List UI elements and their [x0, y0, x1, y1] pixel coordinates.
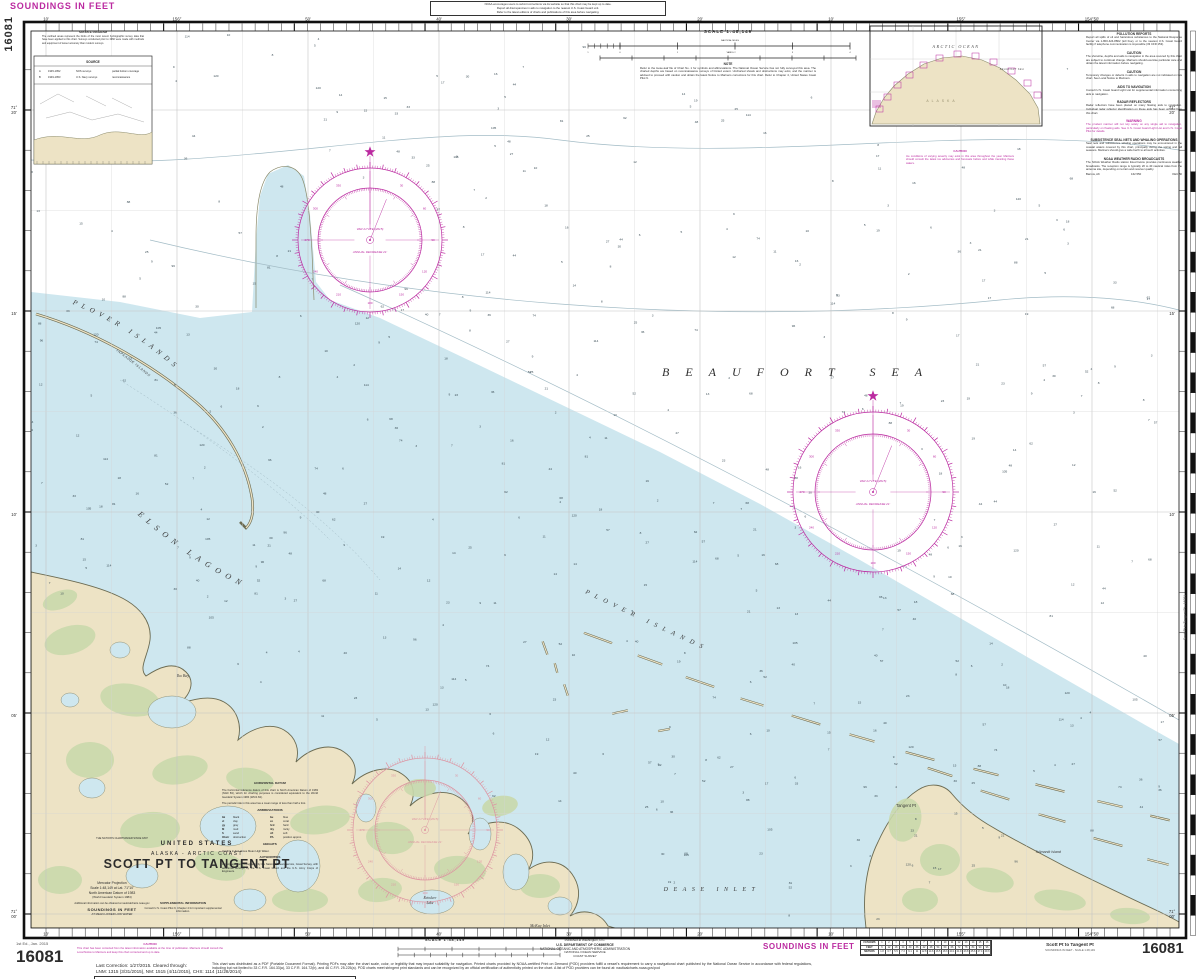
sounding-value: 36: [173, 410, 177, 414]
sounding-value: 2: [204, 466, 206, 470]
sounding-value: 15: [253, 282, 257, 286]
sounding-value: 62: [332, 518, 336, 522]
source-row-dates: 1945-1952: [48, 69, 61, 73]
longitude-label-top: 30': [566, 17, 572, 22]
sounding-value: 62: [1147, 295, 1151, 299]
rose-degree-label: 300: [313, 207, 318, 211]
sounding-value: 57: [1154, 420, 1158, 424]
sounding-value: 114: [106, 564, 111, 568]
sounding-value: 4: [576, 373, 578, 377]
sounding-value: 68: [715, 557, 719, 561]
sounding-value: 4: [266, 651, 268, 655]
sounding-value: 74: [1118, 785, 1122, 789]
sounding-value: 11: [543, 534, 546, 538]
sounding-value: 74: [694, 328, 698, 332]
sounding-value: 44: [1140, 805, 1144, 809]
sounding-value: 12: [366, 316, 370, 320]
sounding-value: 9: [448, 392, 450, 396]
sounding-value: 7: [828, 748, 830, 752]
sounding-value: 3: [415, 444, 417, 448]
margin-ruler-segment: [1191, 433, 1196, 453]
mckay-inlet: McKay Inlet: [529, 923, 551, 928]
sounding-value: 36: [1139, 777, 1143, 781]
sounding-value: 13: [186, 332, 190, 336]
sounding-value: 40: [913, 617, 917, 621]
sounding-value: 15: [383, 96, 387, 100]
sounding-value: 9: [504, 553, 506, 557]
sounding-value: 5: [756, 589, 758, 593]
sounding-value: 96: [413, 638, 417, 642]
rose-degree-label: 30: [455, 773, 459, 777]
sounding-value: 36: [641, 330, 645, 334]
sounding-value: 19: [668, 880, 672, 884]
sounding-value: 114: [746, 113, 751, 117]
rose-variation-change-label: ANNUAL DECREASE 21': [855, 502, 891, 506]
margin-ruler-segment: [1191, 172, 1196, 192]
longitude-label-top: 40': [436, 17, 442, 22]
sounding-value: 114: [185, 35, 190, 39]
sounding-value: 3: [887, 204, 889, 208]
sounding-value: 4: [175, 79, 177, 83]
sounding-value: 19: [897, 548, 901, 552]
sounding-value: 52: [257, 578, 261, 582]
sounding-value: 27: [364, 501, 368, 505]
map-water-land: [31, 31, 1179, 928]
sounding-value: 33: [874, 794, 878, 798]
margin-ruler-segment: [1191, 594, 1196, 614]
sounding-value: 48: [962, 165, 966, 169]
sounding-value: 5: [376, 718, 378, 722]
sounding-value: 81: [81, 537, 85, 541]
sounding-value: 4: [667, 408, 669, 412]
sounding-value: 17: [765, 781, 769, 785]
sounding-value: 6: [342, 466, 344, 470]
rose-variation-label: VAR 21°15'E (2015): [357, 227, 384, 231]
sounding-value: 19: [971, 436, 975, 440]
sounding-value: 96: [171, 264, 175, 268]
sounding-value: 3: [479, 424, 481, 428]
sounding-value: 6: [811, 96, 813, 100]
sounding-value: 19: [694, 99, 698, 103]
lake: [276, 840, 320, 892]
sounding-value: 8: [469, 329, 471, 333]
sounding-value: 68: [775, 562, 779, 566]
sounding-value: 68: [1070, 176, 1074, 180]
latitude-label-right: 05': [1169, 713, 1175, 718]
sounding-value: 36: [184, 156, 188, 160]
sounding-value: 14: [573, 283, 577, 287]
sounding-value: 21: [1025, 237, 1029, 241]
sounding-value: 18: [914, 600, 918, 604]
margin-ruler-segment: [1191, 775, 1196, 795]
margin-ruler-segment: [1191, 473, 1196, 493]
sounding-value: 5: [504, 95, 506, 99]
sounding-value: 57: [982, 723, 986, 727]
sounding-value: 7: [1131, 560, 1133, 564]
sounding-value: 9: [151, 259, 153, 263]
sounding-value: 27: [506, 340, 510, 344]
sounding-value: 25: [145, 250, 149, 254]
sounding-value: 7: [311, 277, 313, 281]
inset-beaufort-sea-label: BEAUFORT SEA: [1000, 68, 1024, 71]
sounding-value: 5: [388, 335, 390, 339]
sounding-value: 81: [1049, 614, 1053, 618]
sounding-value: 8: [788, 914, 790, 918]
sounding-value: 3: [1067, 242, 1069, 246]
longitude-label-top: 20': [697, 17, 703, 22]
sounding-value: 11: [382, 135, 385, 139]
sounding-value: 6: [1063, 227, 1065, 231]
sounding-value: 25: [468, 545, 472, 549]
sounding-value: 96: [582, 45, 586, 49]
sounding-value: 57: [880, 659, 884, 663]
sounding-value: 21: [267, 543, 271, 547]
sounding-value: 57: [1158, 738, 1162, 742]
margin-ruler-segment: [1191, 31, 1196, 51]
sounding-value: 96: [283, 531, 287, 535]
lake: [79, 778, 105, 798]
source-row-agency: U.S. Navy surveys: [76, 75, 98, 79]
longitude-label-bottom: 40': [436, 932, 442, 937]
sounding-value: 40: [425, 312, 429, 316]
sounding-value: 6: [750, 732, 752, 736]
sounding-value: 11: [252, 543, 255, 547]
sounding-value: 6: [639, 233, 641, 237]
sounding-value: 23: [906, 694, 910, 698]
sounding-value: 27: [523, 640, 527, 644]
sounding-value: 15: [827, 730, 831, 734]
sounding-value: 30: [953, 779, 957, 783]
sounding-value: 23: [446, 601, 450, 605]
sounding-value: 8: [877, 143, 879, 147]
rose-degree-label: 150: [906, 551, 911, 555]
margin-ruler-segment: [1191, 574, 1196, 594]
sounding-value: 3: [921, 447, 923, 451]
sounding-value: 7: [929, 880, 931, 884]
sounding-value: 9: [1031, 391, 1033, 395]
margin-ruler-segment: [1191, 694, 1196, 714]
beaufort-sea: BEAUFORT SEA: [662, 365, 938, 379]
sounding-value: 74: [756, 237, 760, 241]
sounding-value: 48: [864, 393, 868, 397]
sounding-value: 8: [915, 817, 917, 821]
sounding-value: 7: [1148, 418, 1150, 422]
sounding-value: 7: [451, 443, 453, 447]
sounding-value: 4: [260, 680, 262, 684]
sounding-value: 62: [717, 755, 721, 759]
sounding-value: 4: [318, 37, 320, 41]
sounding-value: 6: [493, 732, 495, 736]
sounding-value: 4: [442, 623, 444, 627]
sounding-value: 48: [695, 120, 699, 124]
inset-current-chart-highlight: [872, 100, 881, 108]
margin-ruler-segment: [1191, 111, 1196, 131]
longitude-label-top: 50': [305, 17, 311, 22]
latitude-label-left: 20': [11, 110, 17, 115]
sounding-value: 14: [398, 566, 402, 570]
rose-variation-label: VAR 21°15'E (2015): [412, 817, 439, 821]
bottom-scale-bars: [398, 947, 560, 957]
sounding-value: 6: [947, 545, 949, 549]
longitude-label-bottom: 50': [305, 932, 311, 937]
sounding-value: 23: [911, 829, 915, 833]
sounding-value: 15: [79, 221, 83, 225]
sounding-value: 81: [789, 881, 793, 885]
margin-ruler-segment: [1191, 755, 1196, 775]
sounding-value: 36: [487, 313, 491, 317]
sounding-value: 8: [705, 758, 707, 762]
sounding-value: 120: [572, 514, 577, 518]
sounding-value: 9: [173, 65, 175, 69]
sounding-value: 25: [645, 805, 649, 809]
sounding-value: 14: [1013, 448, 1017, 452]
sounding-value: 18: [117, 476, 121, 480]
sounding-value: 9: [669, 725, 671, 729]
sounding-value: 6: [862, 407, 864, 411]
sounding-value: 25: [972, 781, 976, 785]
sounding-value: 9: [1114, 364, 1116, 368]
longitude-label-top: 156°: [173, 17, 182, 22]
sounding-value: 33: [72, 494, 76, 498]
sounding-value: 10: [805, 229, 809, 233]
sounding-value: 114: [692, 559, 697, 563]
sounding-value: 6: [805, 514, 807, 518]
sounding-value: 16: [795, 259, 799, 263]
sounding-value: 88: [1090, 829, 1094, 833]
margin-ruler-segment: [1191, 895, 1196, 915]
sounding-value: 23: [455, 393, 459, 397]
sounding-value: 10: [324, 349, 328, 353]
sounding-value: 120: [355, 322, 360, 326]
sounding-value: 62: [658, 763, 662, 767]
sounding-value: 8: [892, 311, 894, 315]
sounding-value: 105: [209, 616, 214, 620]
sounding-value: 17: [1160, 720, 1164, 724]
sounding-value: 4: [1091, 367, 1093, 371]
sounding-value: 36: [395, 426, 399, 430]
margin-ruler-segment: [1191, 453, 1196, 473]
sounding-value: 3: [994, 208, 996, 212]
lake: [356, 794, 376, 822]
sounding-value: 120: [1013, 549, 1018, 553]
sounding-value: 88: [187, 645, 191, 649]
sounding-value: 27: [294, 599, 298, 603]
rose-degree-label: 150: [399, 293, 404, 297]
sounding-value: 114: [451, 677, 456, 681]
tundra-patch: [66, 742, 114, 778]
sounding-value: 14: [452, 551, 456, 555]
sounding-value: 33: [66, 309, 70, 313]
rose-center-dot: [369, 239, 371, 241]
sounding-value: 48: [1009, 464, 1013, 468]
tulimanik-island: Tulimanik Island: [1035, 850, 1062, 854]
sounding-value: 2: [908, 272, 910, 276]
sounding-value: 52: [1085, 369, 1089, 373]
sounding-value: 7: [740, 507, 742, 511]
sounding-value: 36: [857, 838, 861, 842]
sounding-value: 40: [573, 771, 577, 775]
sounding-value: 2: [799, 263, 801, 267]
sounding-value: 68: [951, 592, 955, 596]
sounding-value: 23: [722, 458, 726, 462]
sounding-value: 6: [367, 417, 369, 421]
sounding-value: 120: [316, 86, 321, 90]
sounding-value: 4: [1043, 378, 1045, 382]
sounding-value: 5: [1033, 769, 1035, 773]
margin-ruler-segment: [1191, 373, 1196, 393]
sounding-value: 105: [205, 537, 210, 541]
latitude-label-left: 10': [11, 512, 17, 517]
iko-bay: Iko Bay: [176, 673, 190, 678]
sounding-value: 96: [879, 595, 883, 599]
sounding-value: 12: [732, 255, 736, 259]
rose-degree-label: 330: [391, 773, 396, 777]
sounding-value: 10: [1003, 683, 1007, 687]
sounding-value: 17: [938, 867, 942, 871]
sounding-value: 7: [473, 188, 475, 192]
sounding-value: 48: [289, 551, 293, 555]
sounding-value: 5: [690, 105, 692, 109]
sounding-value: 23: [1001, 381, 1005, 385]
sounding-value: 30: [269, 536, 273, 540]
sounding-value: 12: [1101, 601, 1105, 605]
sounding-value: 6: [750, 680, 752, 684]
sounding-value: 74: [994, 748, 998, 752]
margin-ruler-segment: [1191, 71, 1196, 91]
rose-degree-label: 330: [835, 429, 840, 433]
sounding-value: 74: [486, 664, 490, 668]
margin-ruler-segment: [1191, 654, 1196, 674]
sounding-value: 13: [425, 707, 429, 711]
sounding-value: 88: [746, 798, 750, 802]
margin-ruler-segment: [1191, 232, 1196, 252]
sounding-value: 48: [766, 468, 770, 472]
sounding-value: 18: [1006, 686, 1010, 690]
sounding-value: 13: [1070, 724, 1074, 728]
lake: [110, 642, 130, 658]
sounding-value: 8: [279, 375, 281, 379]
sounding-value: 15: [364, 108, 368, 112]
sounding-value: 3: [1056, 218, 1058, 222]
sounding-value: 114: [593, 339, 598, 343]
sounding-value: 52: [956, 659, 960, 663]
rose-degree-label: 120: [477, 860, 482, 864]
sounding-value: 19: [900, 404, 904, 408]
latitude-label-right: 15': [1169, 311, 1175, 316]
sounding-value: 2: [262, 425, 264, 429]
sounding-value: 6: [237, 662, 239, 666]
sounding-value: 18: [544, 204, 548, 208]
sounding-value: 12: [39, 383, 43, 387]
sounding-value: 44: [619, 237, 623, 241]
sounding-value: 10: [534, 166, 538, 170]
sounding-value: 9: [300, 515, 302, 519]
sounding-value: 4: [1090, 711, 1092, 715]
inset-alaska-label: ALASKA: [926, 99, 957, 103]
sounding-value: 40: [316, 510, 320, 514]
sounding-value: 40: [874, 654, 878, 658]
sounding-value: 44: [979, 502, 983, 506]
sounding-value: 10: [60, 591, 64, 595]
nautical-chart-page: 2691627529647121936681205915254888371118…: [0, 0, 1200, 979]
rose-degree-label: 120: [422, 270, 427, 274]
sounding-value: 27: [730, 765, 734, 769]
sounding-value: 8: [276, 254, 278, 258]
sounding-value: 74: [399, 438, 403, 442]
sounding-value: 15: [933, 866, 937, 870]
rose-variation-change-label: ANNUAL DECREASE 21': [352, 250, 388, 254]
sounding-value: 7: [1081, 394, 1083, 398]
sounding-value: 23: [876, 917, 880, 921]
rose-degree-label: 330: [336, 183, 341, 187]
sounding-value: 52: [165, 482, 169, 486]
sounding-value: 21: [545, 387, 549, 391]
sounding-value: 36: [1158, 788, 1162, 792]
sounding-value: 52: [528, 370, 532, 374]
sounding-value: 21: [324, 117, 328, 121]
sounding-value: 105: [684, 853, 689, 857]
sounding-value: 3: [497, 107, 499, 111]
sounding-value: 5: [494, 144, 496, 148]
rose-degree-label: 300: [368, 797, 373, 801]
sounding-value: 30: [466, 74, 470, 78]
sounding-value: 16: [136, 491, 140, 495]
sounding-value: 3: [363, 176, 365, 180]
longitude-label-bottom: 154°50': [1085, 932, 1100, 937]
sounding-value: 5: [85, 566, 87, 570]
sounding-value: 5: [680, 230, 682, 234]
sounding-value: 18: [99, 505, 103, 509]
sounding-value: 9: [906, 317, 908, 321]
sounding-value: 120: [93, 333, 98, 337]
sounding-value: 14: [554, 572, 558, 576]
sounding-value: 40: [196, 579, 200, 583]
lake: [126, 864, 158, 888]
sounding-value: 30: [1052, 374, 1056, 378]
rose-degree-label: 60: [933, 455, 937, 459]
sounding-value: 96: [268, 458, 272, 462]
sounding-value: 6: [300, 314, 302, 318]
sounding-value: 27: [646, 540, 650, 544]
sounding-value: 88: [127, 200, 131, 204]
sounding-value: 11: [523, 169, 526, 173]
sounding-value: 7: [1066, 67, 1068, 71]
margin-ruler-segment: [1191, 795, 1196, 815]
sounding-value: 57: [238, 231, 242, 235]
sounding-value: 30: [671, 755, 675, 759]
sounding-value: 21: [978, 248, 982, 252]
rose-degree-label: 30: [907, 429, 911, 433]
sounding-value: 14: [339, 93, 343, 97]
sounding-value: 23: [553, 697, 557, 701]
sounding-value: 2: [1001, 663, 1003, 667]
sounding-value: 44: [513, 253, 517, 257]
sounding-value: 16: [565, 226, 569, 230]
sounding-value: 3: [35, 543, 37, 547]
sounding-value: 3: [456, 154, 458, 158]
sounding-value: 68: [1148, 558, 1152, 562]
sounding-value: 114: [1059, 718, 1064, 722]
chart-map-canvas: 2691627529647121936681205915254888371118…: [0, 0, 1200, 979]
sounding-value: 52: [702, 779, 706, 783]
sounding-value: 81: [585, 454, 589, 458]
sounding-value: 7: [439, 313, 441, 317]
sounding-value: 88: [978, 764, 982, 768]
sounding-value: 57: [897, 608, 901, 612]
sounding-value: 16: [798, 465, 802, 469]
margin-ruler-segment: [1191, 735, 1196, 755]
rose-variation-change-label: ANNUAL DECREASE 21': [407, 840, 443, 844]
